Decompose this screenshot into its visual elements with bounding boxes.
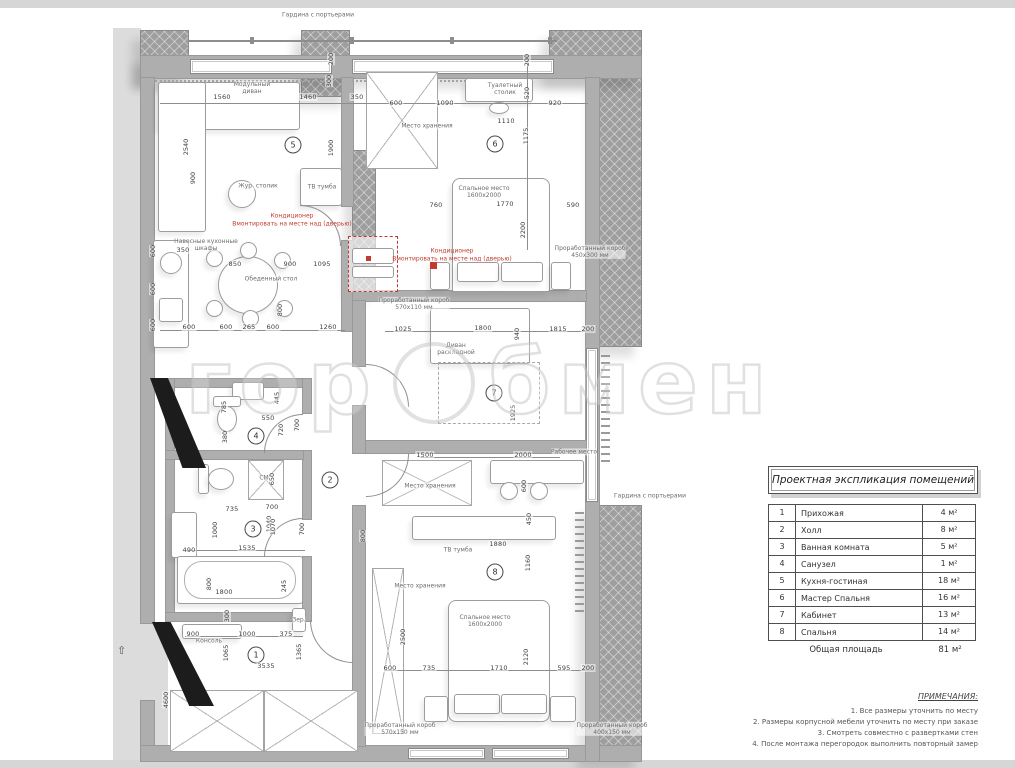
dimension-label: 900 [282, 260, 297, 268]
room-index: 8 [769, 624, 796, 640]
dimension-label: 550 [260, 414, 275, 422]
dimension-label: 850 [227, 260, 242, 268]
room-number: 1 [248, 647, 265, 664]
floor-plan-sheet: ⇧ Гардина с портьерамиМодульный диванЖур… [0, 0, 1015, 768]
furniture-label: Туалетный столик [488, 82, 522, 96]
furniture-label: Проработанный короб 450х300 мм [555, 245, 626, 259]
dimension-label: 1800 [214, 588, 233, 596]
furniture-label: Консоль [196, 637, 222, 644]
dimension-label: 200 [580, 664, 595, 672]
room-number: 7 [486, 385, 503, 402]
furniture-label: Проработанный короб 570х110 мм [379, 297, 450, 311]
dimension-label: 350 [349, 93, 364, 101]
dimension-label: 1535 [237, 544, 256, 552]
dimension-label: 265 [241, 323, 256, 331]
dimension-label: 1500 [415, 451, 434, 459]
legend-row: 8 Спальня 14 м² [768, 624, 976, 641]
dimension-label: 1260 [318, 323, 337, 331]
furniture-label: Проработанный короб 400х150 мм [577, 722, 648, 736]
furniture-label: Гардина с портьерами [614, 492, 686, 499]
legend-row: 4 Санузел 1 м² [768, 556, 976, 573]
furniture-label: Навесные кухонные шкафы [174, 238, 238, 252]
legend-total-row: Общая площадь 81 м² [768, 642, 976, 658]
room-area: 16 м² [922, 590, 975, 606]
dimension-label: 900 [189, 172, 197, 184]
dimension-label: 760 [428, 201, 443, 209]
dimension-label: 520 [523, 87, 531, 99]
room-area: 8 м² [922, 522, 975, 538]
dimension-label: 1070 [269, 519, 277, 536]
dimension-label: 200 [580, 325, 595, 333]
notes-list: 1. Все размеры уточнить по месту 2. Разм… [688, 706, 978, 749]
dimension-label: 375 [278, 630, 293, 638]
dimension-label: 700 [264, 503, 279, 511]
dimension-label: 1160 [524, 555, 532, 572]
legend-row: 6 Мастер Спальня 16 м² [768, 590, 976, 607]
dimension-label: 595 [556, 664, 571, 672]
dimension-label: 200 [327, 53, 335, 65]
dimension-label: 1065 [222, 645, 230, 662]
room-name: Ванная комната [796, 543, 922, 552]
dimension-label: 720 [277, 424, 285, 436]
dimension-label: 1815 [548, 325, 567, 333]
room-index: 6 [769, 590, 796, 606]
dimension-label: 590 [565, 201, 580, 209]
room-number: 8 [487, 564, 504, 581]
dimension-label: 600 [149, 319, 157, 331]
dimension-label: 2120 [522, 649, 530, 666]
dimension-label: 1095 [312, 260, 331, 268]
room-index: 5 [769, 573, 796, 589]
dimension-label: 490 [181, 546, 196, 554]
note-line: 2. Размеры корпусной мебели уточнить по … [688, 717, 978, 728]
dimension-label: 2540 [182, 139, 190, 156]
dimension-label: 300 [325, 75, 333, 87]
dimension-label: 380 [221, 431, 229, 443]
total-area: 81 м² [924, 645, 976, 655]
room-number: 5 [285, 137, 302, 154]
dimension-label: 800 [359, 530, 367, 542]
dimension-label: 200 [523, 54, 531, 66]
furniture-label: Проработанный короб 570х150 мм [365, 722, 436, 736]
room-name: Спальня [796, 628, 922, 637]
room-area: 1 м² [922, 556, 975, 572]
dimension-label: 600 [149, 245, 157, 257]
dimension-label: 4600 [162, 692, 170, 709]
notes-block: ПРИМЕЧАНИЯ: 1. Все размеры уточнить по м… [688, 692, 978, 749]
dimension-label: 600 [265, 323, 280, 331]
dimension-label: 1040 [265, 516, 273, 533]
dimension-label: 735 [224, 505, 239, 513]
dimension-label: 700 [298, 523, 306, 535]
legend-title: Проектная экспликация помещений [768, 466, 978, 494]
legend-row: 3 Ванная комната 5 м² [768, 539, 976, 556]
dimension-label: 650 [268, 473, 276, 485]
note-line: 1. Все размеры уточнить по месту [688, 706, 978, 717]
furniture-label: ТВ тумба [308, 183, 337, 190]
room-name: Мастер Спальня [796, 594, 922, 603]
legend-table: 1 Прихожая 4 м² 2 Холл 8 м² 3 Ванная ком… [768, 504, 976, 641]
dimension-label: 1880 [488, 540, 507, 548]
furniture-label: ТВ тумба [444, 546, 473, 553]
dimension-label: 940 [513, 328, 521, 340]
dimension-label: 800 [205, 578, 213, 590]
furniture-label: СМ [259, 474, 268, 481]
room-area: 18 м² [922, 573, 975, 589]
room-name: Прихожая [796, 509, 922, 518]
note-line: 3. Смотреть совместно с развертками стен [688, 728, 978, 739]
notes-heading: ПРИМЕЧАНИЯ: [688, 692, 978, 701]
room-index: 3 [769, 539, 796, 555]
legend-title-text: Проектная экспликация помещений [772, 474, 974, 486]
dimension-label: 600 [149, 283, 157, 295]
dimension-label: 1025 [393, 325, 412, 333]
dimension-label: 445 [273, 392, 281, 404]
dimension-label: 700 [293, 419, 301, 431]
furniture-label: Место хранения [401, 122, 452, 129]
furniture-label: Место хранения [404, 482, 455, 489]
dimension-label: 1710 [489, 664, 508, 672]
dimension-label: 1925 [509, 405, 517, 422]
furniture-label: Рабочее место [551, 448, 597, 455]
furniture-label: Спальное место 1600х2000 [458, 185, 509, 199]
note-line: 4. После монтажа перегородок выполнить п… [688, 739, 978, 750]
furniture-label: Зер. [292, 616, 305, 623]
furniture-label: Обеденный стол [245, 275, 298, 282]
room-area: 14 м² [922, 624, 975, 640]
legend-row: 2 Холл 8 м² [768, 522, 976, 539]
legend-row: 7 Кабинет 13 м² [768, 607, 976, 624]
room-area: 5 м² [922, 539, 975, 555]
dimension-label: 735 [421, 664, 436, 672]
ac-annotation: Кондиционер Вмонтировать на месте над (д… [392, 248, 512, 263]
dimension-label: 1000 [211, 522, 219, 539]
room-area: 13 м² [922, 607, 975, 623]
legend-row: 5 Кухня-гостиная 18 м² [768, 573, 976, 590]
dimension-label: 1460 [298, 93, 317, 101]
legend-row: 1 Прихожая 4 м² [768, 505, 976, 522]
room-index: 4 [769, 556, 796, 572]
room-index: 2 [769, 522, 796, 538]
room-number: 4 [248, 428, 265, 445]
room-name: Холл [796, 526, 922, 535]
dimension-label: 600 [520, 480, 528, 492]
dimension-label: 785 [220, 401, 228, 413]
dimension-label: 1175 [522, 128, 530, 145]
dimension-label: 600 [382, 664, 397, 672]
dimension-label: 600 [388, 99, 403, 107]
dimension-label: 600 [218, 323, 233, 331]
dimension-label: 350 [175, 246, 190, 254]
room-name: Санузел [796, 560, 922, 569]
dimension-label: 1110 [496, 117, 515, 125]
dimension-label: 920 [547, 99, 562, 107]
dimension-label: 450 [525, 513, 533, 525]
room-index: 7 [769, 607, 796, 623]
dimension-label: 1770 [495, 200, 514, 208]
room-number: 3 [245, 521, 262, 538]
dimension-label: 2200 [519, 222, 527, 239]
furniture-label: Гардина с портьерами [282, 11, 354, 18]
dimension-label: 1000 [237, 630, 256, 638]
dimension-label: 600 [181, 323, 196, 331]
dimension-label: 1365 [295, 644, 303, 661]
dimension-label: 2000 [513, 451, 532, 459]
dimension-label: 1900 [327, 140, 335, 157]
dimension-label: 245 [280, 580, 288, 592]
dimension-label: 300 [223, 610, 231, 622]
dimension-label: 900 [185, 630, 200, 638]
room-number: 6 [487, 136, 504, 153]
room-number: 2 [322, 472, 339, 489]
room-name: Кухня-гостиная [796, 577, 922, 586]
furniture-label: Жур. столик [238, 182, 277, 189]
room-index: 1 [769, 505, 796, 521]
furniture-label: Диван раскладной [437, 342, 475, 356]
dimension-label: 2500 [399, 629, 407, 646]
total-label: Общая площадь [768, 645, 924, 655]
furniture-label: Место хранения [394, 582, 445, 589]
dimension-label: 1560 [212, 93, 231, 101]
dimension-label: 1800 [473, 324, 492, 332]
room-name: Кабинет [796, 611, 922, 620]
dimension-label: 3535 [256, 662, 275, 670]
room-area: 4 м² [922, 505, 975, 521]
ac-annotation: Кондиционер Вмонтировать на месте над (д… [232, 213, 352, 228]
dimension-label: 1090 [435, 99, 454, 107]
dimension-label: 800 [276, 304, 284, 316]
furniture-label: Спальное место 1600х2000 [459, 614, 510, 628]
furniture-label: Модульный диван [234, 81, 270, 95]
